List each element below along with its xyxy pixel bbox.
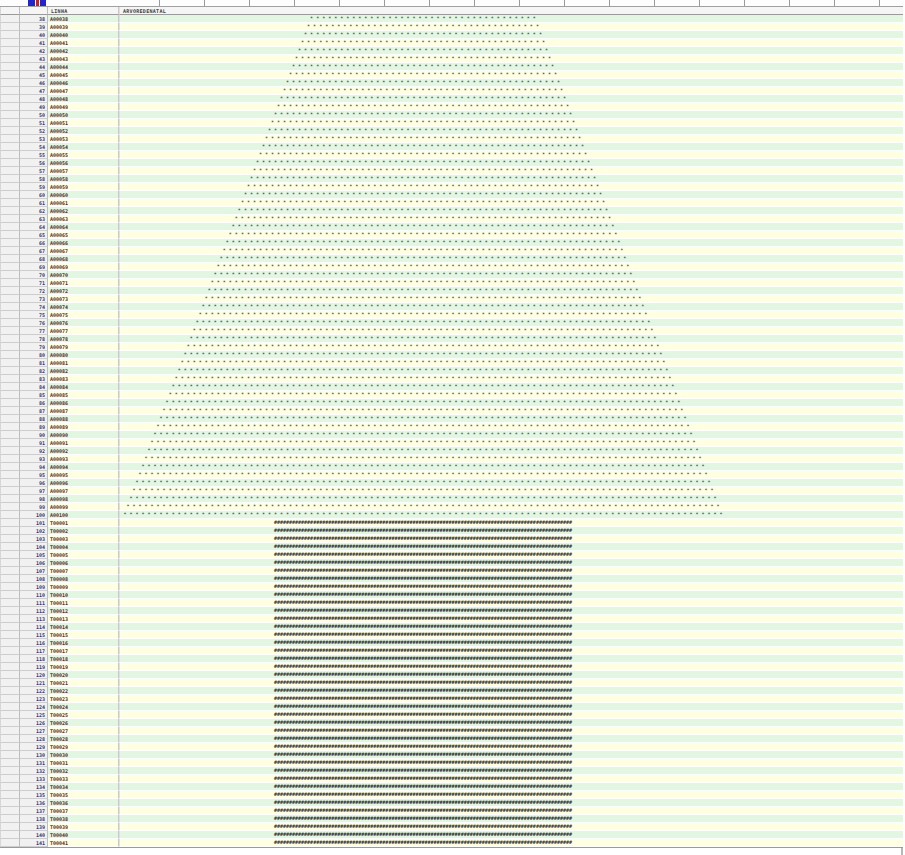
row-selector-cell[interactable]: [0, 439, 20, 447]
row-selector-cell[interactable]: [0, 391, 20, 399]
row-selector-cell[interactable]: [0, 79, 20, 87]
row-selector-cell[interactable]: [0, 759, 20, 767]
linha-cell[interactable]: A00100: [48, 511, 119, 519]
row-selector-cell[interactable]: [0, 647, 20, 655]
art-cell[interactable]: ########################################…: [119, 543, 903, 551]
art-cell[interactable]: ########################################…: [119, 695, 903, 703]
row-selector-cell[interactable]: [0, 655, 20, 663]
row-selector-cell[interactable]: [0, 207, 20, 215]
art-cell[interactable]: ########################################…: [119, 751, 903, 759]
row-selector-cell[interactable]: [0, 127, 20, 135]
linha-cell[interactable]: A00086: [48, 399, 119, 407]
linha-cell[interactable]: T00040: [48, 831, 119, 839]
row-selector-cell[interactable]: [0, 479, 20, 487]
linha-cell[interactable]: T00031: [48, 759, 119, 767]
linha-cell[interactable]: A00054: [48, 143, 119, 151]
row-selector-cell[interactable]: [0, 807, 20, 815]
row-selector-cell[interactable]: [0, 263, 20, 271]
art-cell[interactable]: * * * * * * * * * * * * * * * * * * * * …: [119, 343, 903, 351]
row-selector-cell[interactable]: [0, 279, 20, 287]
linha-cell[interactable]: A00082: [48, 367, 119, 375]
art-cell[interactable]: ########################################…: [119, 807, 903, 815]
art-cell[interactable]: ########################################…: [119, 823, 903, 831]
linha-cell[interactable]: A00047: [48, 87, 119, 95]
linha-cell[interactable]: T00027: [48, 727, 119, 735]
art-cell[interactable]: ########################################…: [119, 759, 903, 767]
art-cell[interactable]: * * * * * * * * * * * * * * * * * * * * …: [119, 215, 903, 223]
linha-cell[interactable]: A00094: [48, 463, 119, 471]
art-cell[interactable]: * * * * * * * * * * * * * * * * * * * * …: [119, 47, 903, 55]
row-selector-cell[interactable]: [0, 87, 20, 95]
linha-cell[interactable]: A00068: [48, 255, 119, 263]
linha-cell[interactable]: A00092: [48, 447, 119, 455]
row-selector-cell[interactable]: [0, 367, 20, 375]
linha-cell[interactable]: T00023: [48, 695, 119, 703]
linha-cell[interactable]: A00038: [48, 15, 119, 23]
linha-cell[interactable]: T00036: [48, 799, 119, 807]
art-cell[interactable]: * * * * * * * * * * * * * * * * * * * * …: [119, 239, 903, 247]
linha-cell[interactable]: A00056: [48, 159, 119, 167]
linha-cell[interactable]: A00051: [48, 119, 119, 127]
linha-cell[interactable]: T00013: [48, 615, 119, 623]
art-cell[interactable]: * * * * * * * * * * * * * * * * * * * * …: [119, 71, 903, 79]
art-cell[interactable]: * * * * * * * * * * * * * * * * * * * * …: [119, 135, 903, 143]
row-selector-cell[interactable]: [0, 727, 20, 735]
linha-cell[interactable]: T00026: [48, 719, 119, 727]
art-cell[interactable]: ########################################…: [119, 535, 903, 543]
linha-cell[interactable]: T00025: [48, 711, 119, 719]
art-cell[interactable]: * * * * * * * * * * * * * * * * * * * * …: [119, 23, 903, 31]
linha-cell[interactable]: A00095: [48, 471, 119, 479]
art-cell[interactable]: * * * * * * * * * * * * * * * * * * * * …: [119, 31, 903, 39]
column-header-arvorenatal[interactable]: ARVOREDENATAL: [119, 7, 903, 15]
row-selector-cell[interactable]: [0, 311, 20, 319]
art-cell[interactable]: * * * * * * * * * * * * * * * * * * * * …: [119, 383, 903, 391]
art-cell[interactable]: * * * * * * * * * * * * * * * * * * * * …: [119, 175, 903, 183]
art-cell[interactable]: ########################################…: [119, 527, 903, 535]
linha-cell[interactable]: A00060: [48, 191, 119, 199]
art-cell[interactable]: * * * * * * * * * * * * * * * * * * * * …: [119, 15, 903, 23]
art-cell[interactable]: * * * * * * * * * * * * * * * * * * * * …: [119, 183, 903, 191]
row-selector-cell[interactable]: [0, 351, 20, 359]
row-selector-cell[interactable]: [0, 535, 20, 543]
row-selector-cell[interactable]: [0, 599, 20, 607]
art-cell[interactable]: * * * * * * * * * * * * * * * * * * * * …: [119, 151, 903, 159]
row-selector-cell[interactable]: [0, 607, 20, 615]
art-cell[interactable]: * * * * * * * * * * * * * * * * * * * * …: [119, 199, 903, 207]
art-cell[interactable]: * * * * * * * * * * * * * * * * * * * * …: [119, 87, 903, 95]
linha-cell[interactable]: A00088: [48, 415, 119, 423]
row-selector-cell[interactable]: [0, 511, 20, 519]
art-cell[interactable]: ########################################…: [119, 711, 903, 719]
linha-cell[interactable]: T00030: [48, 751, 119, 759]
row-selector-cell[interactable]: [0, 319, 20, 327]
art-cell[interactable]: * * * * * * * * * * * * * * * * * * * * …: [119, 79, 903, 87]
art-cell[interactable]: * * * * * * * * * * * * * * * * * * * * …: [119, 495, 903, 503]
row-selector-cell[interactable]: [0, 55, 20, 63]
art-cell[interactable]: * * * * * * * * * * * * * * * * * * * * …: [119, 447, 903, 455]
linha-cell[interactable]: T00003: [48, 535, 119, 543]
linha-cell[interactable]: T00007: [48, 567, 119, 575]
art-cell[interactable]: ########################################…: [119, 519, 903, 527]
column-header-linha[interactable]: LINHA: [48, 7, 119, 15]
art-cell[interactable]: * * * * * * * * * * * * * * * * * * * * …: [119, 55, 903, 63]
linha-cell[interactable]: T00008: [48, 575, 119, 583]
row-selector-cell[interactable]: [0, 239, 20, 247]
linha-cell[interactable]: A00048: [48, 95, 119, 103]
art-cell[interactable]: ########################################…: [119, 623, 903, 631]
row-selector-cell[interactable]: [0, 335, 20, 343]
linha-cell[interactable]: A00093: [48, 455, 119, 463]
linha-cell[interactable]: A00063: [48, 215, 119, 223]
art-cell[interactable]: ########################################…: [119, 591, 903, 599]
row-selector-cell[interactable]: [0, 455, 20, 463]
row-selector-cell[interactable]: [0, 175, 20, 183]
row-selector-cell[interactable]: [0, 431, 20, 439]
art-cell[interactable]: ########################################…: [119, 575, 903, 583]
linha-cell[interactable]: A00044: [48, 63, 119, 71]
art-cell[interactable]: ########################################…: [119, 743, 903, 751]
art-cell[interactable]: * * * * * * * * * * * * * * * * * * * * …: [119, 143, 903, 151]
linha-cell[interactable]: A00067: [48, 247, 119, 255]
linha-cell[interactable]: T00012: [48, 607, 119, 615]
row-selector-cell[interactable]: [0, 71, 20, 79]
art-cell[interactable]: ########################################…: [119, 727, 903, 735]
art-cell[interactable]: ########################################…: [119, 655, 903, 663]
row-selector-cell[interactable]: [0, 503, 20, 511]
row-selector-cell[interactable]: [0, 719, 20, 727]
linha-cell[interactable]: A00097: [48, 487, 119, 495]
linha-cell[interactable]: A00041: [48, 39, 119, 47]
art-cell[interactable]: * * * * * * * * * * * * * * * * * * * * …: [119, 415, 903, 423]
linha-cell[interactable]: A00096: [48, 479, 119, 487]
linha-cell[interactable]: A00045: [48, 71, 119, 79]
row-selector-cell[interactable]: [0, 463, 20, 471]
linha-cell[interactable]: T00038: [48, 815, 119, 823]
linha-cell[interactable]: A00064: [48, 223, 119, 231]
art-cell[interactable]: * * * * * * * * * * * * * * * * * * * * …: [119, 159, 903, 167]
linha-cell[interactable]: T00004: [48, 543, 119, 551]
linha-cell[interactable]: A00065: [48, 231, 119, 239]
row-selector-cell[interactable]: [0, 327, 20, 335]
linha-cell[interactable]: T00014: [48, 623, 119, 631]
row-selector-cell[interactable]: [0, 135, 20, 143]
art-cell[interactable]: ########################################…: [119, 791, 903, 799]
row-selector-cell[interactable]: [0, 751, 20, 759]
linha-cell[interactable]: A00059: [48, 183, 119, 191]
art-cell[interactable]: * * * * * * * * * * * * * * * * * * * * …: [119, 263, 903, 271]
art-cell[interactable]: * * * * * * * * * * * * * * * * * * * * …: [119, 455, 903, 463]
art-cell[interactable]: * * * * * * * * * * * * * * * * * * * * …: [119, 463, 903, 471]
linha-cell[interactable]: A00039: [48, 23, 119, 31]
row-selector-cell[interactable]: [0, 639, 20, 647]
row-selector-cell[interactable]: [0, 559, 20, 567]
linha-cell[interactable]: A00081: [48, 359, 119, 367]
row-selector-cell[interactable]: [0, 247, 20, 255]
linha-cell[interactable]: A00076: [48, 319, 119, 327]
linha-cell[interactable]: T00009: [48, 583, 119, 591]
linha-cell[interactable]: A00099: [48, 503, 119, 511]
linha-cell[interactable]: A00077: [48, 327, 119, 335]
art-cell[interactable]: ########################################…: [119, 615, 903, 623]
row-selector-cell[interactable]: [0, 775, 20, 783]
linha-cell[interactable]: A00046: [48, 79, 119, 87]
linha-cell[interactable]: T00037: [48, 807, 119, 815]
linha-cell[interactable]: T00041: [48, 839, 119, 847]
linha-cell[interactable]: A00053: [48, 135, 119, 143]
row-selector-cell[interactable]: [0, 687, 20, 695]
linha-cell[interactable]: T00011: [48, 599, 119, 607]
art-cell[interactable]: ########################################…: [119, 639, 903, 647]
linha-cell[interactable]: T00033: [48, 775, 119, 783]
linha-cell[interactable]: T00019: [48, 663, 119, 671]
art-cell[interactable]: * * * * * * * * * * * * * * * * * * * * …: [119, 295, 903, 303]
art-cell[interactable]: * * * * * * * * * * * * * * * * * * * * …: [119, 423, 903, 431]
row-selector-cell[interactable]: [0, 359, 20, 367]
art-cell[interactable]: ########################################…: [119, 687, 903, 695]
row-selector-cell[interactable]: [0, 447, 20, 455]
art-cell[interactable]: * * * * * * * * * * * * * * * * * * * * …: [119, 479, 903, 487]
linha-cell[interactable]: A00089: [48, 423, 119, 431]
row-selector-cell[interactable]: [0, 151, 20, 159]
art-cell[interactable]: ########################################…: [119, 719, 903, 727]
row-selector-cell[interactable]: [0, 255, 20, 263]
linha-cell[interactable]: A00069: [48, 263, 119, 271]
row-selector-cell[interactable]: [0, 423, 20, 431]
row-selector-cell[interactable]: [0, 167, 20, 175]
art-cell[interactable]: ########################################…: [119, 799, 903, 807]
row-selector-cell[interactable]: [0, 551, 20, 559]
linha-cell[interactable]: A00091: [48, 439, 119, 447]
linha-cell[interactable]: A00062: [48, 207, 119, 215]
linha-cell[interactable]: A00049: [48, 103, 119, 111]
art-cell[interactable]: * * * * * * * * * * * * * * * * * * * * …: [119, 167, 903, 175]
row-selector-cell[interactable]: [0, 399, 20, 407]
linha-cell[interactable]: A00098: [48, 495, 119, 503]
linha-cell[interactable]: T00018: [48, 655, 119, 663]
art-cell[interactable]: * * * * * * * * * * * * * * * * * * * * …: [119, 319, 903, 327]
row-selector-cell[interactable]: [0, 799, 20, 807]
linha-cell[interactable]: A00074: [48, 303, 119, 311]
row-selector-cell[interactable]: [0, 63, 20, 71]
art-cell[interactable]: ########################################…: [119, 831, 903, 839]
art-cell[interactable]: * * * * * * * * * * * * * * * * * * * * …: [119, 487, 903, 495]
row-selector-cell[interactable]: [0, 671, 20, 679]
row-selector-cell[interactable]: [0, 695, 20, 703]
row-selector-cell[interactable]: [0, 295, 20, 303]
row-selector-cell[interactable]: [0, 567, 20, 575]
linha-cell[interactable]: A00052: [48, 127, 119, 135]
linha-cell[interactable]: A00085: [48, 391, 119, 399]
linha-cell[interactable]: T00017: [48, 647, 119, 655]
row-selector-cell[interactable]: [0, 303, 20, 311]
art-cell[interactable]: ########################################…: [119, 559, 903, 567]
art-cell[interactable]: * * * * * * * * * * * * * * * * * * * * …: [119, 207, 903, 215]
row-selector-cell[interactable]: [0, 375, 20, 383]
row-selector-cell[interactable]: [0, 839, 20, 847]
art-cell[interactable]: * * * * * * * * * * * * * * * * * * * * …: [119, 399, 903, 407]
linha-cell[interactable]: T00005: [48, 551, 119, 559]
art-cell[interactable]: * * * * * * * * * * * * * * * * * * * * …: [119, 287, 903, 295]
linha-cell[interactable]: A00084: [48, 383, 119, 391]
row-selector-cell[interactable]: [0, 783, 20, 791]
art-cell[interactable]: * * * * * * * * * * * * * * * * * * * * …: [119, 311, 903, 319]
art-cell[interactable]: ########################################…: [119, 703, 903, 711]
art-cell[interactable]: * * * * * * * * * * * * * * * * * * * * …: [119, 39, 903, 47]
linha-cell[interactable]: A00040: [48, 31, 119, 39]
row-selector-cell[interactable]: [0, 583, 20, 591]
row-selector-cell[interactable]: [0, 575, 20, 583]
linha-cell[interactable]: T00002: [48, 527, 119, 535]
art-cell[interactable]: ########################################…: [119, 767, 903, 775]
art-cell[interactable]: * * * * * * * * * * * * * * * * * * * * …: [119, 503, 903, 511]
row-selector-cell[interactable]: [0, 615, 20, 623]
linha-cell[interactable]: T00024: [48, 703, 119, 711]
linha-cell[interactable]: A00087: [48, 407, 119, 415]
art-cell[interactable]: * * * * * * * * * * * * * * * * * * * * …: [119, 223, 903, 231]
row-selector-cell[interactable]: [0, 183, 20, 191]
linha-cell[interactable]: A00043: [48, 55, 119, 63]
art-cell[interactable]: * * * * * * * * * * * * * * * * * * * * …: [119, 359, 903, 367]
linha-cell[interactable]: T00032: [48, 767, 119, 775]
row-selector-cell[interactable]: [0, 103, 20, 111]
art-cell[interactable]: ########################################…: [119, 567, 903, 575]
row-selector-cell[interactable]: [0, 119, 20, 127]
corner-selector-cell[interactable]: [0, 7, 20, 15]
row-selector-cell[interactable]: [0, 343, 20, 351]
linha-cell[interactable]: A00073: [48, 295, 119, 303]
linha-cell[interactable]: T00035: [48, 791, 119, 799]
art-cell[interactable]: * * * * * * * * * * * * * * * * * * * * …: [119, 255, 903, 263]
linha-cell[interactable]: T00029: [48, 743, 119, 751]
art-cell[interactable]: * * * * * * * * * * * * * * * * * * * * …: [119, 327, 903, 335]
art-cell[interactable]: * * * * * * * * * * * * * * * * * * * * …: [119, 303, 903, 311]
art-cell[interactable]: * * * * * * * * * * * * * * * * * * * * …: [119, 431, 903, 439]
row-selector-cell[interactable]: [0, 23, 20, 31]
row-selector-cell[interactable]: [0, 703, 20, 711]
linha-cell[interactable]: T00020: [48, 671, 119, 679]
art-cell[interactable]: ########################################…: [119, 783, 903, 791]
row-selector-cell[interactable]: [0, 527, 20, 535]
linha-cell[interactable]: A00083: [48, 375, 119, 383]
row-selector-cell[interactable]: [0, 223, 20, 231]
linha-cell[interactable]: A00078: [48, 335, 119, 343]
art-cell[interactable]: * * * * * * * * * * * * * * * * * * * * …: [119, 471, 903, 479]
art-cell[interactable]: * * * * * * * * * * * * * * * * * * * * …: [119, 367, 903, 375]
art-cell[interactable]: ########################################…: [119, 775, 903, 783]
row-selector-cell[interactable]: [0, 623, 20, 631]
row-selector-cell[interactable]: [0, 287, 20, 295]
row-selector-cell[interactable]: [0, 231, 20, 239]
linha-cell[interactable]: A00090: [48, 431, 119, 439]
linha-cell[interactable]: A00050: [48, 111, 119, 119]
art-cell[interactable]: * * * * * * * * * * * * * * * * * * * * …: [119, 279, 903, 287]
row-selector-cell[interactable]: [0, 191, 20, 199]
row-selector-cell[interactable]: [0, 791, 20, 799]
row-selector-cell[interactable]: [0, 743, 20, 751]
linha-cell[interactable]: T00006: [48, 559, 119, 567]
linha-cell[interactable]: A00075: [48, 311, 119, 319]
art-cell[interactable]: ########################################…: [119, 551, 903, 559]
linha-cell[interactable]: A00071: [48, 279, 119, 287]
art-cell[interactable]: ########################################…: [119, 583, 903, 591]
art-cell[interactable]: ########################################…: [119, 663, 903, 671]
row-selector-cell[interactable]: [0, 823, 20, 831]
row-selector-cell[interactable]: [0, 679, 20, 687]
art-cell[interactable]: * * * * * * * * * * * * * * * * * * * * …: [119, 375, 903, 383]
row-selector-cell[interactable]: [0, 815, 20, 823]
row-selector-cell[interactable]: [0, 271, 20, 279]
row-selector-cell[interactable]: [0, 415, 20, 423]
row-selector-cell[interactable]: [0, 31, 20, 39]
art-cell[interactable]: ########################################…: [119, 671, 903, 679]
row-selector-cell[interactable]: [0, 735, 20, 743]
linha-cell[interactable]: T00039: [48, 823, 119, 831]
linha-cell[interactable]: A00058: [48, 175, 119, 183]
art-cell[interactable]: * * * * * * * * * * * * * * * * * * * * …: [119, 247, 903, 255]
art-cell[interactable]: ########################################…: [119, 839, 903, 847]
linha-cell[interactable]: T00021: [48, 679, 119, 687]
row-selector-cell[interactable]: [0, 543, 20, 551]
row-selector-cell[interactable]: [0, 495, 20, 503]
row-selector-cell[interactable]: [0, 47, 20, 55]
art-cell[interactable]: * * * * * * * * * * * * * * * * * * * * …: [119, 407, 903, 415]
row-selector-cell[interactable]: [0, 199, 20, 207]
row-selector-cell[interactable]: [0, 631, 20, 639]
art-cell[interactable]: ########################################…: [119, 735, 903, 743]
row-selector-cell[interactable]: [0, 831, 20, 839]
art-cell[interactable]: * * * * * * * * * * * * * * * * * * * * …: [119, 439, 903, 447]
art-cell[interactable]: * * * * * * * * * * * * * * * * * * * * …: [119, 191, 903, 199]
linha-cell[interactable]: A00072: [48, 287, 119, 295]
art-cell[interactable]: * * * * * * * * * * * * * * * * * * * * …: [119, 335, 903, 343]
row-selector-cell[interactable]: [0, 383, 20, 391]
art-cell[interactable]: * * * * * * * * * * * * * * * * * * * * …: [119, 95, 903, 103]
row-selector-cell[interactable]: [0, 767, 20, 775]
art-cell[interactable]: * * * * * * * * * * * * * * * * * * * * …: [119, 103, 903, 111]
art-cell[interactable]: * * * * * * * * * * * * * * * * * * * * …: [119, 231, 903, 239]
row-number-header[interactable]: [20, 7, 48, 15]
row-selector-cell[interactable]: [0, 487, 20, 495]
linha-cell[interactable]: A00057: [48, 167, 119, 175]
art-cell[interactable]: * * * * * * * * * * * * * * * * * * * * …: [119, 351, 903, 359]
row-selector-cell[interactable]: [0, 407, 20, 415]
linha-cell[interactable]: T00010: [48, 591, 119, 599]
art-cell[interactable]: * * * * * * * * * * * * * * * * * * * * …: [119, 119, 903, 127]
row-selector-cell[interactable]: [0, 143, 20, 151]
linha-cell[interactable]: A00079: [48, 343, 119, 351]
art-cell[interactable]: ########################################…: [119, 631, 903, 639]
linha-cell[interactable]: A00042: [48, 47, 119, 55]
art-cell[interactable]: * * * * * * * * * * * * * * * * * * * * …: [119, 511, 903, 519]
art-cell[interactable]: ########################################…: [119, 599, 903, 607]
art-cell[interactable]: * * * * * * * * * * * * * * * * * * * * …: [119, 111, 903, 119]
linha-cell[interactable]: T00022: [48, 687, 119, 695]
art-cell[interactable]: ########################################…: [119, 647, 903, 655]
linha-cell[interactable]: A00066: [48, 239, 119, 247]
linha-cell[interactable]: T00015: [48, 631, 119, 639]
linha-cell[interactable]: T00028: [48, 735, 119, 743]
art-cell[interactable]: * * * * * * * * * * * * * * * * * * * * …: [119, 63, 903, 71]
art-cell[interactable]: * * * * * * * * * * * * * * * * * * * * …: [119, 271, 903, 279]
row-selector-cell[interactable]: [0, 39, 20, 47]
row-selector-cell[interactable]: [0, 663, 20, 671]
row-selector-cell[interactable]: [0, 15, 20, 23]
row-selector-cell[interactable]: [0, 591, 20, 599]
art-cell[interactable]: * * * * * * * * * * * * * * * * * * * * …: [119, 127, 903, 135]
row-selector-cell[interactable]: [0, 95, 20, 103]
art-cell[interactable]: ########################################…: [119, 607, 903, 615]
